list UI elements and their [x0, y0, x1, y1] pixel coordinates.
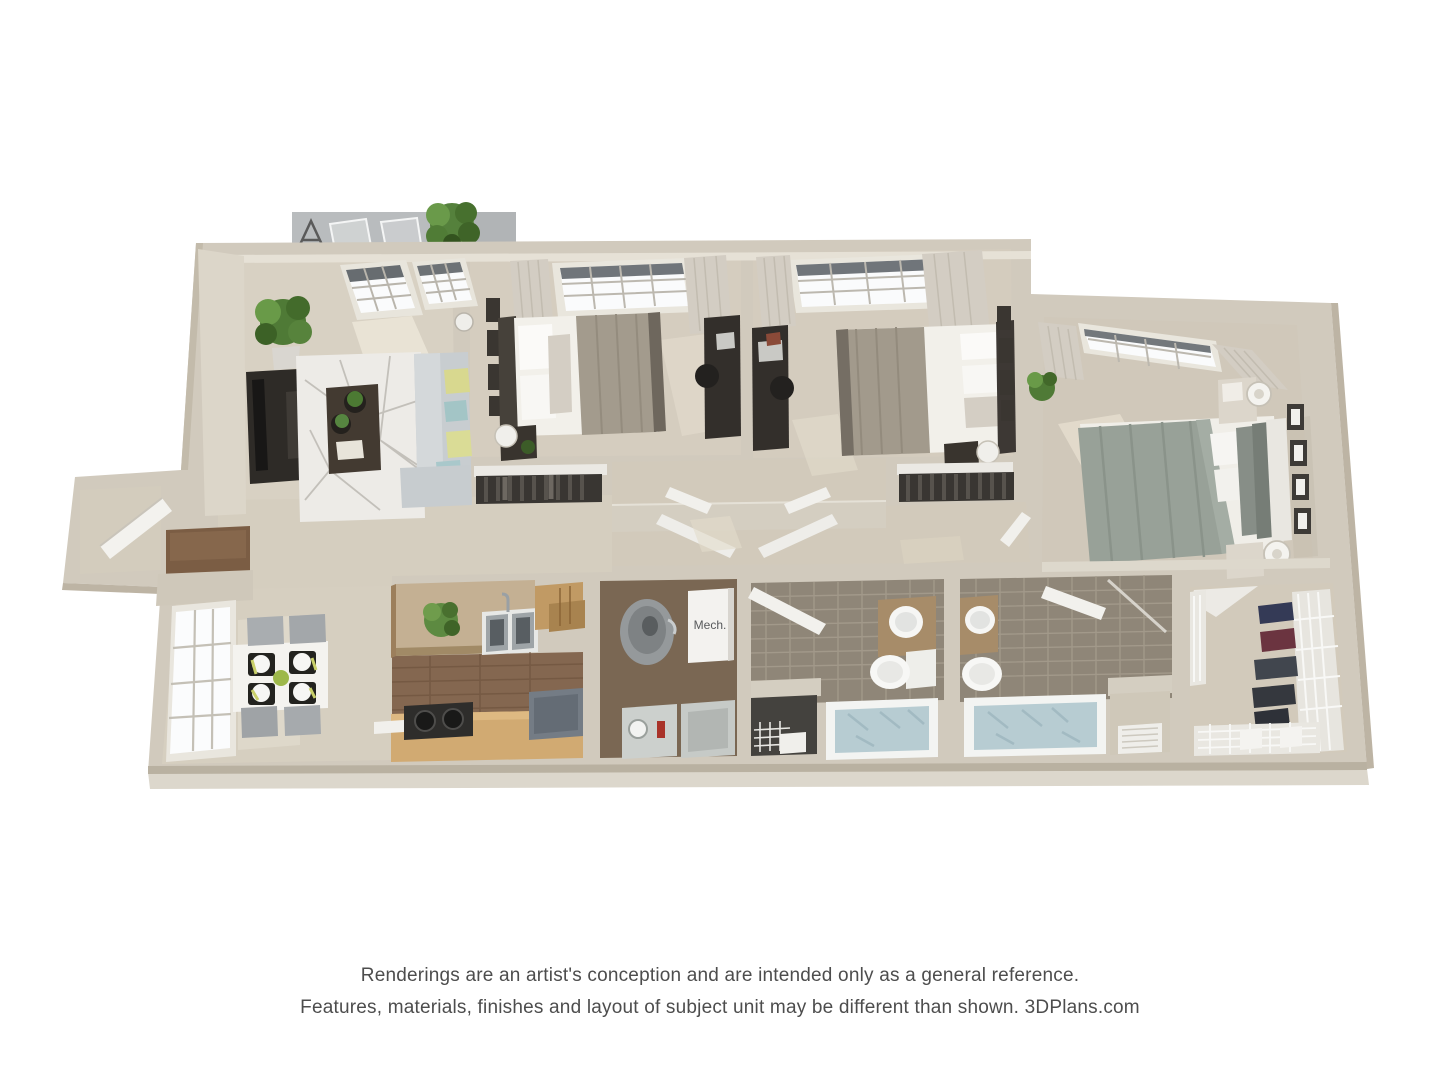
- svg-text:Mech.: Mech.: [694, 618, 727, 632]
